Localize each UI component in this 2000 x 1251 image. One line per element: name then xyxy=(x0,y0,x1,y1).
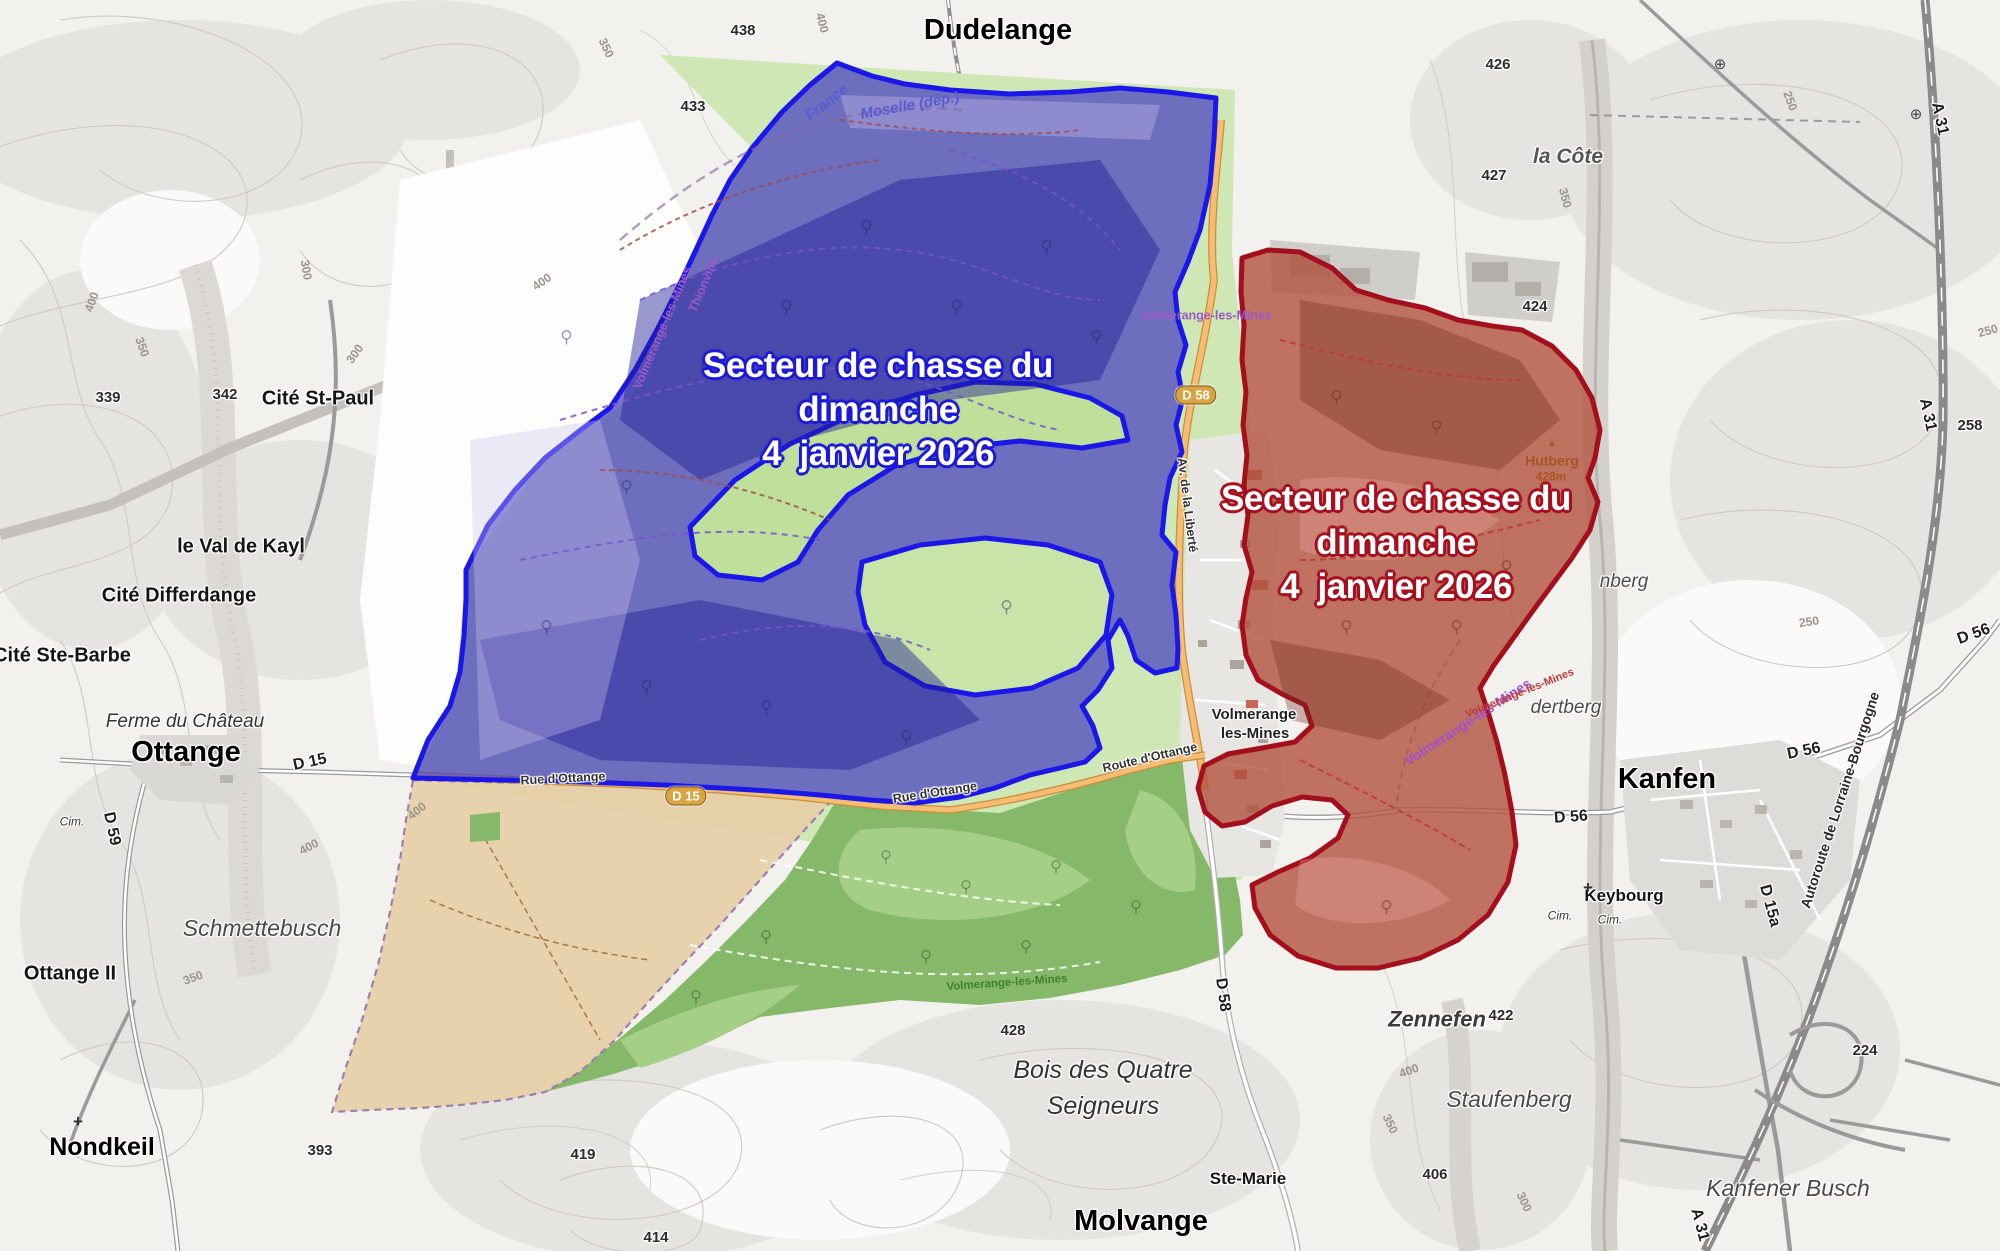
label-cite-st-paul: Cité St-Paul xyxy=(262,389,374,410)
label-keybourg: Keybourg xyxy=(1584,887,1663,905)
label-contour-400: 400 xyxy=(83,290,102,313)
label-hutberg: Hutberg xyxy=(1525,454,1579,469)
map-canvas[interactable]: DudelangeOttangeMolvangeKanfenNondkeilZe… xyxy=(0,0,2000,1251)
junction-icon: ⊕ xyxy=(1714,57,1727,73)
label-contour-400: 400 xyxy=(297,837,321,858)
label-cimetiere: Cim. xyxy=(1598,914,1623,927)
map-labels-layer: DudelangeOttangeMolvangeKanfenNondkeilZe… xyxy=(0,0,2000,1251)
label-av-de-la-liberte: Av. de la Liberté xyxy=(1175,457,1200,553)
label-road-d15a: D 15a xyxy=(1755,883,1782,929)
label-rue-d-ottange: Rue d'Ottange xyxy=(520,770,605,788)
label-ottange: Ottange xyxy=(131,737,241,767)
label-elev-427: 427 xyxy=(1481,168,1506,184)
junction-icon: ⊕ xyxy=(1910,107,1923,123)
label-road-d59: D 59 xyxy=(99,811,122,848)
peak-icon: ▲ xyxy=(1547,439,1557,450)
label-contour-300: 300 xyxy=(1514,1190,1534,1213)
label-contour-400: 400 xyxy=(813,12,830,35)
blue-sector-title-line2: dimanche xyxy=(798,390,957,429)
label-molvange: Molvange xyxy=(1074,1206,1208,1236)
label-contour-250: 250 xyxy=(1977,322,2000,339)
label-zennefen: Zennefen xyxy=(1388,1007,1486,1030)
label-contour-350: 350 xyxy=(1556,187,1573,210)
label-border-france: France xyxy=(803,82,851,125)
label-commune-volmerange: Volmerange-les-Mines xyxy=(631,265,695,391)
label-border-moselle: Moselle (dép.) xyxy=(859,90,960,123)
label-contour-300: 300 xyxy=(298,259,314,281)
label-cimetiere: Cim. xyxy=(60,816,85,829)
label-dudelange: Dudelange xyxy=(924,15,1072,45)
label-elev-414: 414 xyxy=(643,1230,668,1246)
blue-sector-title: Secteur de chasse dudimanche4 janvier 20… xyxy=(703,344,1053,476)
label-elev-424: 424 xyxy=(1522,299,1547,315)
label-ottange-2: Ottange II xyxy=(24,964,116,985)
label-nondkeil: Nondkeil xyxy=(49,1134,155,1160)
label-contour-250: 250 xyxy=(1781,89,1800,112)
label-contour-400: 400 xyxy=(530,271,554,293)
label-schmettebusch: Schmettebusch xyxy=(183,916,342,940)
label-elev-438: 438 xyxy=(730,23,755,39)
label-road-d15: D 15 xyxy=(292,751,329,774)
label-ste-marie: Ste-Marie xyxy=(1210,1170,1287,1188)
cross-icon: + xyxy=(73,1113,83,1131)
road-shield-d58: D 58 xyxy=(1175,386,1216,405)
label-ferme-du-chateau: Ferme du Château xyxy=(106,712,264,732)
blue-sector-title-line1: Secteur de chasse du xyxy=(703,346,1053,385)
label-road-d56: D 56 xyxy=(1955,621,1993,648)
label-kanfener-busch: Kanfener Busch xyxy=(1706,1176,1870,1200)
label-contour-350: 350 xyxy=(181,969,204,988)
label-cite-ste-barbe: Cité Ste-Barbe xyxy=(0,646,131,667)
label-contour-350: 350 xyxy=(1380,1112,1400,1135)
label-dertberg: dertberg xyxy=(1531,698,1602,718)
label-seigneurs: Seigneurs xyxy=(1047,1093,1160,1119)
label-rue-d-ottange: Rue d'Ottange xyxy=(892,780,978,806)
label-commune-volmerange: Volmerange-les-Mines xyxy=(1140,309,1272,322)
red-sector-title-line1: Secteur de chasse du xyxy=(1221,479,1571,518)
label-volmerange-line2: les-Mines xyxy=(1221,726,1289,742)
label-road-a31: A 31 xyxy=(1687,1207,1712,1243)
label-la-cote: la Côte xyxy=(1533,146,1603,168)
label-elev-406: 406 xyxy=(1422,1167,1447,1183)
red-sector-title-line2: dimanche xyxy=(1316,523,1475,562)
label-autoroute-lorraine-bourgogne: Autoroute de Lorraine-Bourgogne xyxy=(1798,690,1882,910)
label-elev-393: 393 xyxy=(307,1143,332,1159)
label-road-a31: A 31 xyxy=(1927,101,1950,137)
label-kanfen: Kanfen xyxy=(1618,764,1716,794)
label-contour-400: 400 xyxy=(405,800,429,822)
label-elev-422: 422 xyxy=(1488,1008,1513,1024)
label-le-val-de-kayl: le Val de Kayl xyxy=(177,537,305,558)
label-bois-des-quatre: Bois des Quatre xyxy=(1013,1057,1192,1083)
label-staufenberg: Staufenberg xyxy=(1446,1087,1571,1111)
label-path-volmerange: Volmerange-les-Mines xyxy=(946,973,1068,993)
blue-sector-title-line3: 4 janvier 2026 xyxy=(762,434,994,473)
label-elev-428: 428 xyxy=(1000,1023,1025,1039)
road-shield-d15: D 15 xyxy=(665,787,706,806)
label-commune-thionville: Thionville xyxy=(687,256,722,315)
label-contour-350: 350 xyxy=(133,335,152,358)
label-elev-342: 342 xyxy=(212,387,237,403)
label-road-d56: D 56 xyxy=(1554,808,1589,827)
label-route-d-ottange: Route d'Ottange xyxy=(1101,741,1198,776)
label-volmerange-line1: Volmerange xyxy=(1212,707,1297,723)
label-elev-419: 419 xyxy=(570,1147,595,1163)
label-road-d58: D 58 xyxy=(1211,977,1232,1013)
label-contour-250: 250 xyxy=(1798,614,1820,629)
label-elev-426: 426 xyxy=(1485,57,1510,73)
label-elev-224: 224 xyxy=(1852,1043,1877,1059)
label-elev-433: 433 xyxy=(680,99,705,115)
label-contour-350: 350 xyxy=(596,36,616,59)
label-elev-258: 258 xyxy=(1957,418,1982,434)
red-sector-title: Secteur de chasse dudimanche4 janvier 20… xyxy=(1221,477,1571,609)
label-road-d56: D 56 xyxy=(1786,740,1823,763)
label-elev-339: 339 xyxy=(95,390,120,406)
label-contour-400: 400 xyxy=(1397,1062,1420,1081)
label-cimetiere: Cim. xyxy=(1548,910,1573,923)
label-nberg: nberg xyxy=(1600,572,1649,592)
red-sector-title-line3: 4 janvier 2026 xyxy=(1280,567,1512,606)
cross-icon: + xyxy=(1583,879,1593,897)
label-cite-differdange: Cité Differdange xyxy=(102,586,256,607)
label-contour-300: 300 xyxy=(344,342,366,366)
label-road-a31: A 31 xyxy=(1915,397,1938,433)
